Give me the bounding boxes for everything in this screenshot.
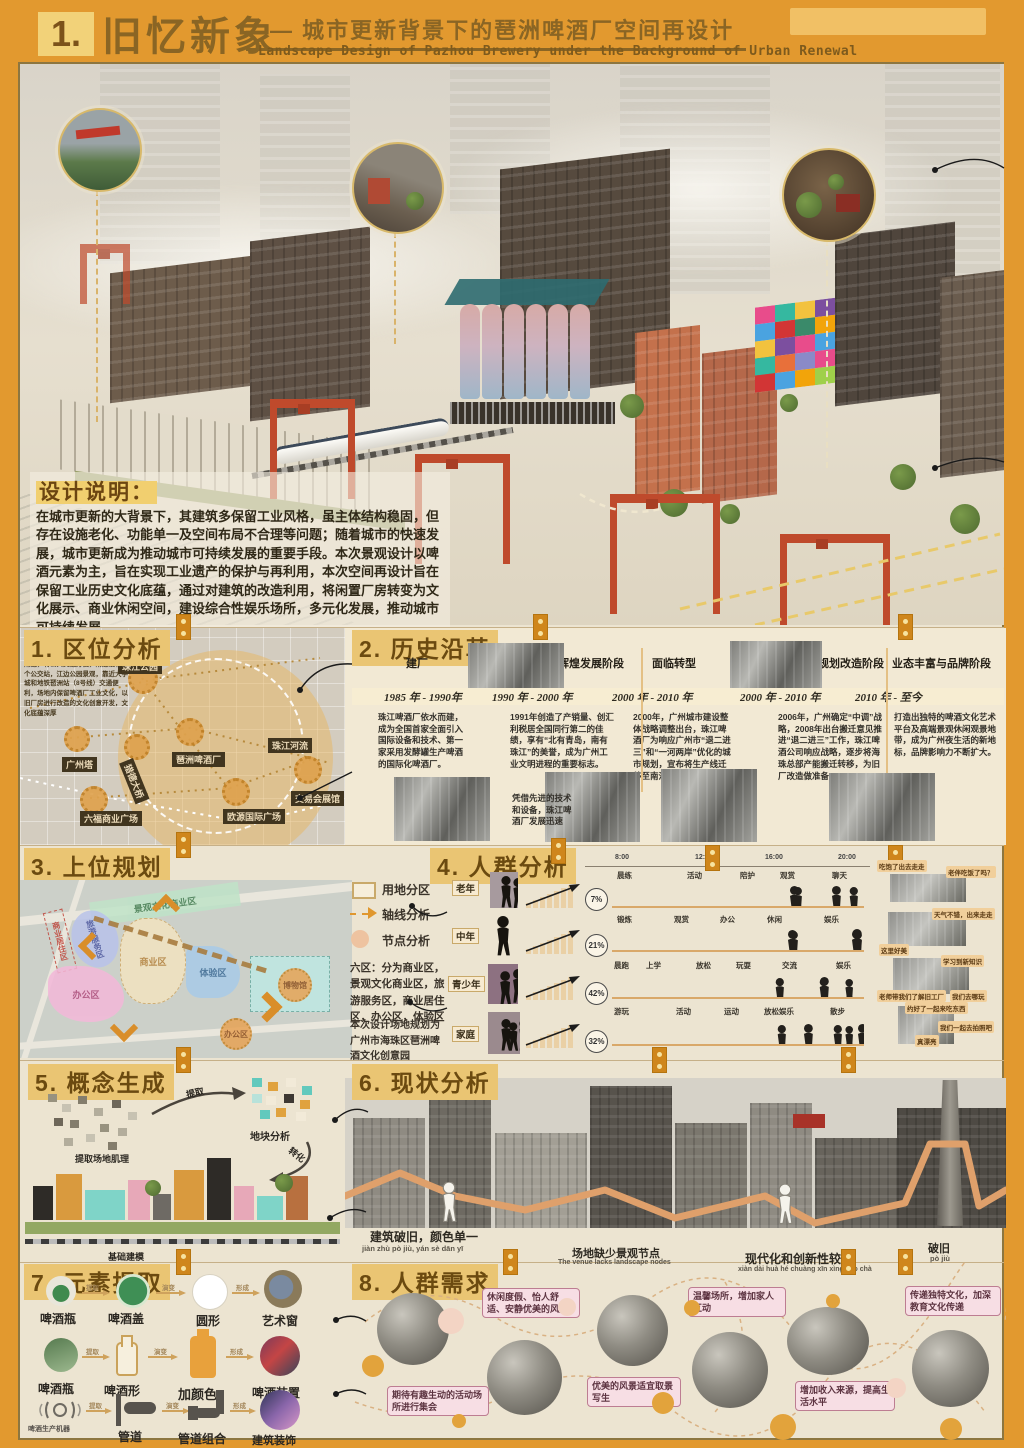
history-text: 珠江啤酒厂依水而建，成为全国首家全面引入国际设备和技术、第一家采用发酵罐生产啤酒… <box>378 712 470 771</box>
circle-shape-icon <box>192 1274 228 1310</box>
speech-bubble: 我们去哪玩 <box>950 990 987 1002</box>
percentage-badge: 21% <box>585 934 608 957</box>
brewing-machine-icon <box>38 1398 82 1422</box>
subtitle-dash: —— <box>246 18 294 43</box>
step-label: 加颜色 <box>178 1384 217 1403</box>
step-arrow <box>148 1356 176 1358</box>
percentage-badge: 32% <box>585 1030 608 1053</box>
history-note: 凭借先进的技术和设备，珠江啤酒厂发展迅速 <box>512 793 572 828</box>
activity-label: 运动 <box>724 1006 739 1017</box>
road <box>20 1016 352 1051</box>
history-text: 1991年创造了产销量、创汇利税居全国同行第二的佳绩，享有“北有青岛，南有珠江”… <box>510 712 616 771</box>
legend-item-zones: 用地分区 <box>382 881 430 898</box>
map-label-brewery: 琶洲啤酒厂 <box>172 752 225 767</box>
step-label: 啤酒生产机器 <box>28 1424 70 1434</box>
ribbon-connector <box>551 838 566 864</box>
activity-label: 散步 <box>830 1006 845 1017</box>
step-arrow <box>226 1356 252 1358</box>
phase-label: 规划改造阶段 <box>818 655 884 671</box>
time-tick: 8:00 <box>615 854 629 861</box>
elderly-icon <box>490 872 518 908</box>
family-icon <box>488 1012 520 1054</box>
needs-photo <box>912 1330 989 1407</box>
step-arrow-label: 形成 <box>233 1400 246 1410</box>
needs-photo <box>487 1340 562 1415</box>
step-arrow <box>230 1410 254 1412</box>
subtitle-cn: 城市更新背景下的琶洲啤酒厂空间再设计 <box>302 18 734 43</box>
need-bubble: 增加收入来源，提高生活水平 <box>795 1381 895 1411</box>
parcel-analysis-cluster <box>252 1078 262 1087</box>
condition-caption-sub: jiàn zhù pò jiù, yán sè dān yī <box>362 1244 463 1253</box>
history-photo <box>730 641 822 690</box>
needs-photo <box>787 1307 869 1375</box>
speech-bubble: 吃饱了出去走走 <box>877 860 927 872</box>
trend-mini-chart <box>524 924 582 954</box>
legend-axis-dash <box>350 913 368 915</box>
map-label-expo: 交易会展馆 <box>291 791 344 806</box>
speech-bubble: 学习到新知识 <box>941 955 984 967</box>
legend-axis-arrowhead <box>368 907 377 919</box>
activity-label: 放松娱乐 <box>764 1006 794 1017</box>
sketch-figure <box>437 1182 461 1222</box>
activity-label: 休闲 <box>767 914 782 925</box>
office-node: 办公区 <box>220 1018 252 1050</box>
pipe-icon <box>116 1394 121 1426</box>
step-arrow <box>86 1410 110 1412</box>
time-tick: 20:00 <box>838 854 856 861</box>
activity-label: 锻炼 <box>617 914 632 925</box>
step-arrow-label: 演变 <box>166 1400 179 1410</box>
activity-label: 活动 <box>687 870 702 881</box>
need-bubble: 传递独特文化，加深教育文化传递 <box>905 1286 1001 1316</box>
needs-photo <box>597 1295 668 1366</box>
activity-label: 晨练 <box>617 870 632 881</box>
accent-dot <box>940 1418 962 1440</box>
map-label-ouyuan: 欧源国际广场 <box>223 809 285 824</box>
map-label-river: 珠江河流 <box>268 738 312 753</box>
timeline-date: 2010 年 - 至今 <box>855 689 922 705</box>
activity-label: 晨跑 <box>614 960 629 971</box>
pipe-combo-icon <box>188 1406 198 1420</box>
activity-strip-family: 游玩 活动 运动 放松娱乐 散步 <box>612 1006 864 1046</box>
sketch-figure <box>773 1184 797 1224</box>
activity-label: 观赏 <box>674 914 689 925</box>
header-highlight-bar <box>790 8 986 35</box>
step-arrow <box>82 1292 108 1294</box>
board-number: 1. <box>38 12 94 56</box>
zone-label: 办公区 <box>224 1029 248 1040</box>
accent-dot <box>886 1378 906 1398</box>
phase-divider <box>641 648 643 792</box>
site-fabric-cluster <box>48 1094 57 1102</box>
phase-label: 建厂 <box>406 655 428 671</box>
phase-label: 辉煌发展阶段 <box>558 655 624 671</box>
accent-dot <box>558 1298 576 1316</box>
board-subtitle-en: Landscape Design of Pazhou Brewery under… <box>258 44 858 59</box>
section1-title: 1. 区位分析 <box>24 630 170 666</box>
youth-icon <box>488 964 518 1004</box>
speech-bubble: 天气不错，出来走走 <box>932 908 995 920</box>
base-model <box>25 1160 340 1248</box>
legend-item-nodes: 节点分析 <box>382 932 430 949</box>
timeline-band: 1985 年 - 1990年 1990 年 - 2000 年 2000 年 - … <box>352 688 1004 705</box>
ribbon-connector <box>898 1249 913 1275</box>
step-arrow <box>232 1292 258 1294</box>
ribbon-connector <box>841 1249 856 1275</box>
activity-label: 游玩 <box>614 1006 629 1017</box>
needs-photo <box>692 1332 768 1408</box>
activity-label: 陪护 <box>740 870 755 881</box>
accent-dot <box>438 1308 464 1334</box>
history-photo <box>829 773 935 841</box>
history-text: 2006年，广州确定“中调”战略，2008年出台搬迁意见推进“退二进三”工作，珠… <box>778 712 885 782</box>
phase-label: 面临转型 <box>652 655 696 671</box>
accent-dot <box>684 1300 700 1316</box>
need-bubble: 温馨场所，增加家人互动 <box>688 1287 786 1317</box>
concept-label-model: 基础建模 <box>108 1250 144 1263</box>
step-arrow-label: 形成 <box>230 1346 243 1356</box>
building-decor-photo-icon <box>260 1390 300 1430</box>
zone-label: 体验区 <box>199 966 226 979</box>
legend-node-swatch <box>351 930 369 948</box>
bottle-outline-icon <box>116 1342 138 1376</box>
ribbon-connector <box>176 832 191 858</box>
needs-photo <box>377 1293 449 1365</box>
group-label-middleaged: 中年 <box>452 928 479 944</box>
step-label: 艺术窗 <box>262 1312 298 1329</box>
activity-label: 玩耍 <box>736 960 751 971</box>
step-label: 建筑装饰 <box>252 1432 296 1448</box>
activity-label: 娱乐 <box>836 960 851 971</box>
design-description-body: 在城市更新的大背景下，其建筑多保留工业风格，虽主体结构稳固，但存在设施老化、功能… <box>36 508 444 637</box>
accent-dot <box>770 1414 796 1440</box>
speech-bubble: 真漂亮 <box>915 1035 939 1047</box>
group-label-family: 家庭 <box>452 1026 479 1042</box>
map-node <box>80 786 108 814</box>
scene-photo <box>890 874 966 902</box>
condition-caption: 建筑破旧，颜色单一 <box>370 1228 478 1245</box>
ribbon-connector <box>705 845 720 871</box>
section6-title: 6. 现状分析 <box>352 1064 498 1100</box>
legend-zone-swatch <box>352 882 376 899</box>
beer-bottle-photo-icon <box>44 1338 78 1372</box>
map-node <box>64 726 90 752</box>
step-label: 啤酒形 <box>104 1382 140 1399</box>
ribbon-connector <box>176 1047 191 1073</box>
step-arrow <box>162 1410 188 1412</box>
step-label: 圆形 <box>196 1312 220 1329</box>
map-label-liufu: 六福商业广场 <box>80 811 142 826</box>
trend-mini-chart <box>524 878 582 908</box>
history-photo <box>394 777 490 841</box>
step-label: 啤酒瓶 <box>40 1310 76 1327</box>
crowd-silhouettes <box>612 884 864 906</box>
planning-map: 景观文化商业区 商业居住区 旅游服务区 商业区 体验区 博物馆 办公区 办公区 <box>20 880 352 1058</box>
activity-strip-middleaged: 锻炼 观赏 办公 休闲 娱乐 <box>612 914 864 952</box>
map-node <box>176 718 204 746</box>
need-bubble: 期待有趣生动的活动场所进行集会 <box>387 1386 489 1416</box>
zone-label: 商业区 <box>139 955 166 968</box>
speech-bubble: 这里好美 <box>879 944 909 956</box>
activity-label: 聊天 <box>832 870 847 881</box>
step-label: 啤酒盖 <box>108 1310 144 1327</box>
colored-bottle-icon <box>190 1336 216 1378</box>
poster-page: 1. 旧忆新象 —— 城市更新背景下的琶洲啤酒厂空间再设计 Landscape … <box>0 0 1024 1447</box>
accent-dot <box>652 1392 674 1414</box>
map-node <box>222 778 250 806</box>
percentage-badge: 7% <box>585 888 608 911</box>
pipe-combo-icon <box>216 1390 224 1414</box>
ribbon-connector <box>898 614 913 640</box>
speech-bubble: 我们一起去拍照吧 <box>938 1021 994 1033</box>
step-arrow-label: 形成 <box>236 1282 249 1292</box>
ribbon-connector <box>176 614 191 640</box>
timeline-date: 1990 年 - 2000 年 <box>492 689 573 705</box>
beer-bottle-photo-icon <box>46 1276 76 1306</box>
phase-label: 业态丰富与品牌阶段 <box>892 655 991 671</box>
step-arrow-label: 演变 <box>162 1282 175 1292</box>
trend-mini-chart <box>524 970 582 1000</box>
map-node <box>294 756 322 784</box>
phase-divider <box>886 648 888 792</box>
ribbon-connector <box>503 1249 518 1275</box>
crowd-silhouettes <box>612 928 864 950</box>
ribbon-connector <box>652 1047 667 1073</box>
zone-label: 办公区 <box>72 988 99 1001</box>
step-arrow-label: 提取 <box>89 1400 102 1410</box>
legend-paragraph-site: 本次设计场地规划为广州市海珠区琶洲啤酒文化创意园 <box>350 1018 446 1065</box>
art-window-photo-icon <box>264 1270 302 1308</box>
step-arrow-label: 提取 <box>86 1282 99 1292</box>
history-photo <box>661 769 757 842</box>
activity-label: 娱乐 <box>824 914 839 925</box>
step-arrow <box>82 1356 108 1358</box>
divider <box>20 1060 1004 1061</box>
pipe-icon <box>124 1402 156 1414</box>
group-label-elderly: 老年 <box>452 880 479 896</box>
section3-title: 3. 上位规划 <box>24 848 170 884</box>
museum-node: 博物馆 <box>278 968 312 1002</box>
accent-dot <box>826 1294 840 1308</box>
divider <box>20 845 1004 846</box>
trend-mini-chart <box>524 1018 582 1048</box>
percentage-badge: 42% <box>585 982 608 1005</box>
step-arrow-label: 演变 <box>154 1346 167 1356</box>
accent-dot <box>452 1414 466 1428</box>
ribbon-connector <box>176 1249 191 1275</box>
activity-label: 观赏 <box>780 870 795 881</box>
activity-strip-youth: 晨跑 上学 放松 玩耍 交流 娱乐 <box>612 960 864 999</box>
timeline-date: 2000 年 - 2010 年 <box>740 689 821 705</box>
step-arrow-label: 提取 <box>86 1346 99 1356</box>
activity-label: 放松 <box>696 960 711 971</box>
timeline-date: 2000 年 - 2010 年 <box>612 689 693 705</box>
zone-office-1: 办公区 <box>48 966 124 1022</box>
site-condition-panorama <box>345 1078 1006 1228</box>
activity-label: 交流 <box>782 960 797 971</box>
ribbon-connector <box>533 614 548 640</box>
crowd-silhouettes <box>612 1022 864 1044</box>
activity-strip-elderly: 晨练 活动 陪护 观赏 聊天 <box>612 870 864 908</box>
history-text: 打造出独特的啤酒文化艺术平台及高端景观休闲观景地带，成为广州夜生活的新地标，品牌… <box>894 712 1000 759</box>
step-label: 管道组合 <box>178 1430 226 1447</box>
crowd-silhouettes <box>612 975 864 997</box>
activity-label: 活动 <box>676 1006 691 1017</box>
map-node <box>124 734 150 760</box>
accent-dot <box>362 1355 384 1377</box>
design-description-label: 设计说明： <box>36 481 157 504</box>
activity-label: 上学 <box>646 960 661 971</box>
history-photo <box>468 643 564 690</box>
speech-bubble: 老师带我们了解旧工厂 <box>877 990 946 1002</box>
speech-bubble: 约好了一起来吃东西 <box>905 1002 968 1014</box>
step-arrow <box>156 1292 184 1294</box>
ribbon-connector <box>841 1047 856 1073</box>
legend-paragraph-zones: 六区：分为商业区，景观文化商业区，旅游服务区，商业居住区，办公区，体验区 <box>350 960 446 1025</box>
step-label: 管道 <box>118 1428 142 1445</box>
activity-label: 办公 <box>720 914 735 925</box>
map-label-tower: 广州塔 <box>62 757 97 772</box>
bottle-cap-icon <box>116 1274 150 1308</box>
design-description: 设计说明： 在城市更新的大背景下，其建筑多保留工业风格，虽主体结构稳固，但存在设… <box>30 472 450 641</box>
legend-item-axis: 轴线分析 <box>382 906 430 923</box>
step-label: 啤酒瓶 <box>38 1380 74 1397</box>
middleaged-icon <box>494 916 512 956</box>
zone-label: 博物馆 <box>283 980 307 991</box>
time-axis <box>585 866 870 867</box>
beer-installation-photo-icon <box>260 1336 300 1376</box>
time-tick: 16:00 <box>765 854 783 861</box>
group-label-youth: 青少年 <box>448 976 485 992</box>
speech-bubble: 老伴吃饭了吗？ <box>946 866 996 878</box>
timeline-date: 1985 年 - 1990年 <box>384 689 462 705</box>
